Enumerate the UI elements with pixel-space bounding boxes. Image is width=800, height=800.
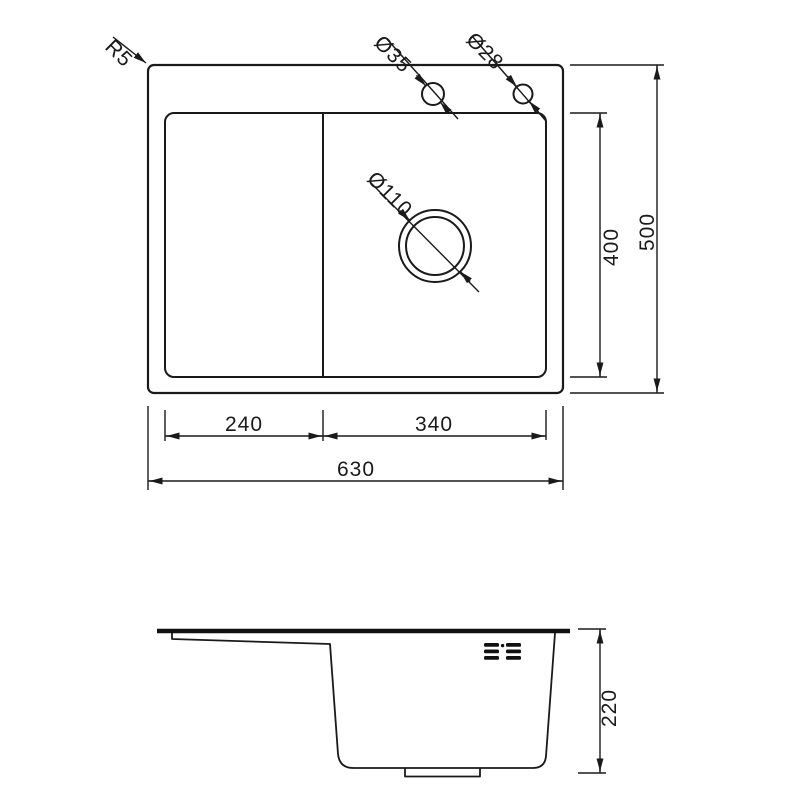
logo-bar <box>506 643 521 647</box>
logo-bar <box>484 656 499 660</box>
dim-label-total-depth: 500 <box>636 213 659 251</box>
drain-hole-outer <box>399 210 471 282</box>
logo-bar <box>506 650 521 654</box>
dim-label-corner-radius: R5 <box>100 35 137 72</box>
arrow-drain-lower <box>460 272 470 282</box>
dim-label-inner-depth: 400 <box>600 228 623 266</box>
drain-fitting-outline <box>405 768 480 777</box>
dim-label-right-section: 340 <box>415 413 453 436</box>
sink-outer-rect <box>148 65 563 393</box>
arrow-faucet-small-upper <box>508 76 517 87</box>
dim-label-faucet-hole-small: Ø28 <box>461 28 507 74</box>
arrow-faucet-small-lower <box>529 101 538 112</box>
drain-hole-inner <box>406 217 464 275</box>
sink-technical-drawing: R5 Ø35 Ø28 Ø110 400 500 <box>0 0 800 800</box>
side-view: 220 <box>157 629 621 777</box>
technical-drawing-page: R5 Ø35 Ø28 Ø110 400 500 <box>0 0 800 800</box>
brand-logo-mark <box>484 643 521 660</box>
top-view: R5 Ø35 Ø28 Ø110 400 500 <box>100 28 664 490</box>
dim-label-bowl-depth: 220 <box>598 689 621 727</box>
logo-bar <box>506 656 521 660</box>
logo-bar <box>484 643 499 647</box>
dim-label-total-width: 630 <box>337 458 375 481</box>
sink-inner-rect <box>165 113 546 377</box>
dim-label-left-section: 240 <box>225 413 263 436</box>
faucet-hole-large <box>422 83 444 105</box>
dim-label-faucet-hole-large: Ø35 <box>369 31 415 77</box>
logo-bar <box>484 650 499 654</box>
dim-label-drain: Ø110 <box>362 167 416 221</box>
logo-dot <box>501 644 504 647</box>
